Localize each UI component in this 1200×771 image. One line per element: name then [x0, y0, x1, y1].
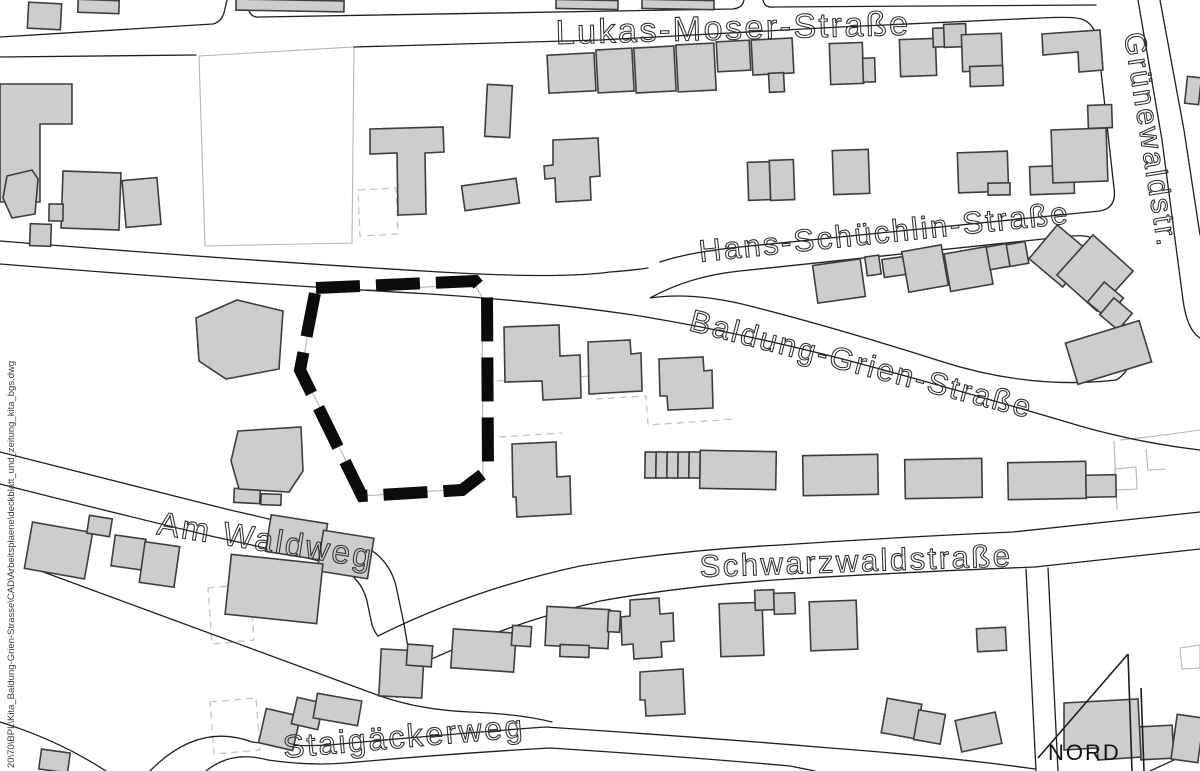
street-label-schwarzwaldstrasse: Schwarzwaldstraße: [699, 538, 1013, 584]
building-footprint: [547, 53, 596, 93]
building-footprint: [588, 340, 642, 394]
planned-outline-dashed: [358, 188, 398, 236]
building-footprint: [970, 65, 1004, 86]
building-footprint: [39, 749, 71, 771]
building-footprint: [678, 452, 689, 478]
building-footprint: [769, 160, 794, 201]
building-footprint: [640, 669, 685, 716]
planned-outline-dashed: [499, 433, 562, 437]
building-footprint: [988, 183, 1010, 195]
building-footprint: [899, 38, 936, 76]
building-footprint: [955, 712, 1002, 752]
road-line: [0, 55, 196, 57]
building-footprint: [1088, 105, 1113, 129]
building-footprint: [1171, 714, 1200, 762]
building-footprint: [512, 442, 571, 517]
building-footprint: [61, 171, 121, 230]
building-footprint: [1006, 242, 1029, 267]
building-footprint: [642, 0, 714, 10]
parcel-line: [1180, 645, 1200, 669]
building-footprint: [78, 0, 119, 14]
building-footprint: [769, 73, 785, 93]
file-path-note: 20\70\BPL\Kita_Baldung-Grien-Strasse\CAD…: [6, 361, 17, 768]
building-footprint: [905, 458, 983, 498]
building-footprint: [902, 245, 949, 292]
parcel-line: [199, 47, 354, 246]
building-footprint: [667, 452, 678, 478]
parcel-line: [302, 285, 483, 496]
building-footprint: [689, 452, 700, 478]
street-label-baldung-grien-strasse: Baldung-Grien-Straße: [686, 303, 1037, 425]
building-footprint: [596, 48, 634, 93]
building-footprint: [863, 58, 876, 82]
building-footprint: [111, 535, 146, 570]
building-footprint: [139, 542, 179, 587]
site-plan-map: Lukas-Moser-StraßeGrünewaldstr.Hans-Schü…: [0, 0, 1200, 771]
building-footprint: [829, 42, 863, 84]
building-footprint: [504, 325, 581, 400]
building-footprint: [451, 629, 517, 672]
building-footprint: [87, 515, 113, 536]
building-footprint: [27, 2, 61, 30]
building-footprint: [485, 84, 513, 137]
building-footprint: [700, 450, 777, 489]
building-footprint: [406, 644, 432, 667]
building-footprint: [659, 357, 713, 410]
building-footprint: [1042, 30, 1103, 72]
building-footprint: [122, 178, 161, 228]
road-line: [0, 241, 648, 276]
building-footprint: [645, 452, 656, 478]
building-footprint: [747, 162, 770, 201]
building-footprint: [832, 149, 870, 194]
building-footprint: [774, 593, 796, 615]
building-footprint: [809, 600, 858, 651]
building-footprint: [621, 598, 674, 659]
building-footprint: [236, 0, 344, 12]
street-label-gruenewaldstr: Grünewaldstr.: [1117, 30, 1184, 250]
building-footprint: [1065, 321, 1151, 385]
building-footprint: [803, 454, 879, 495]
building-footprint: [556, 0, 618, 10]
drawing-canvas: Lukas-Moser-StraßeGrünewaldstr.Hans-Schü…: [0, 0, 1200, 771]
road-line: [1026, 569, 1036, 771]
building-footprint: [976, 627, 1006, 651]
building-footprint: [3, 170, 38, 218]
site-boundary-dashed: [300, 281, 488, 496]
building-footprint: [560, 644, 589, 657]
building-footprint: [755, 590, 775, 611]
parcel-line: [1115, 467, 1137, 490]
building-footprint: [231, 427, 303, 492]
building-footprint: [944, 247, 993, 292]
north-label: NORD: [1048, 740, 1121, 765]
planned-outline-dashed: [210, 698, 260, 754]
building-footprint: [370, 127, 444, 215]
building-footprint: [914, 710, 946, 744]
building-footprint: [462, 178, 520, 210]
parcel-line: [1146, 449, 1166, 470]
building-footprint: [656, 452, 667, 478]
road-line: [763, 0, 1096, 7]
building-footprint: [196, 300, 283, 379]
building-footprint: [1051, 128, 1108, 183]
building-footprint: [30, 224, 52, 247]
building-footprint: [544, 138, 600, 202]
building-footprint: [545, 606, 610, 648]
building-footprint: [261, 494, 281, 506]
building-footprint: [676, 43, 716, 92]
building-footprint: [1086, 475, 1116, 498]
building-footprint: [1185, 76, 1200, 104]
building-footprint: [49, 204, 63, 221]
building-footprint: [634, 46, 676, 93]
building-footprint: [511, 625, 531, 646]
building-footprint: [1008, 461, 1087, 499]
building-footprint: [24, 522, 92, 579]
building-footprint: [1139, 725, 1174, 760]
building-footprint: [607, 611, 620, 633]
building-footprint: [813, 259, 866, 303]
building-footprint: [865, 255, 882, 276]
